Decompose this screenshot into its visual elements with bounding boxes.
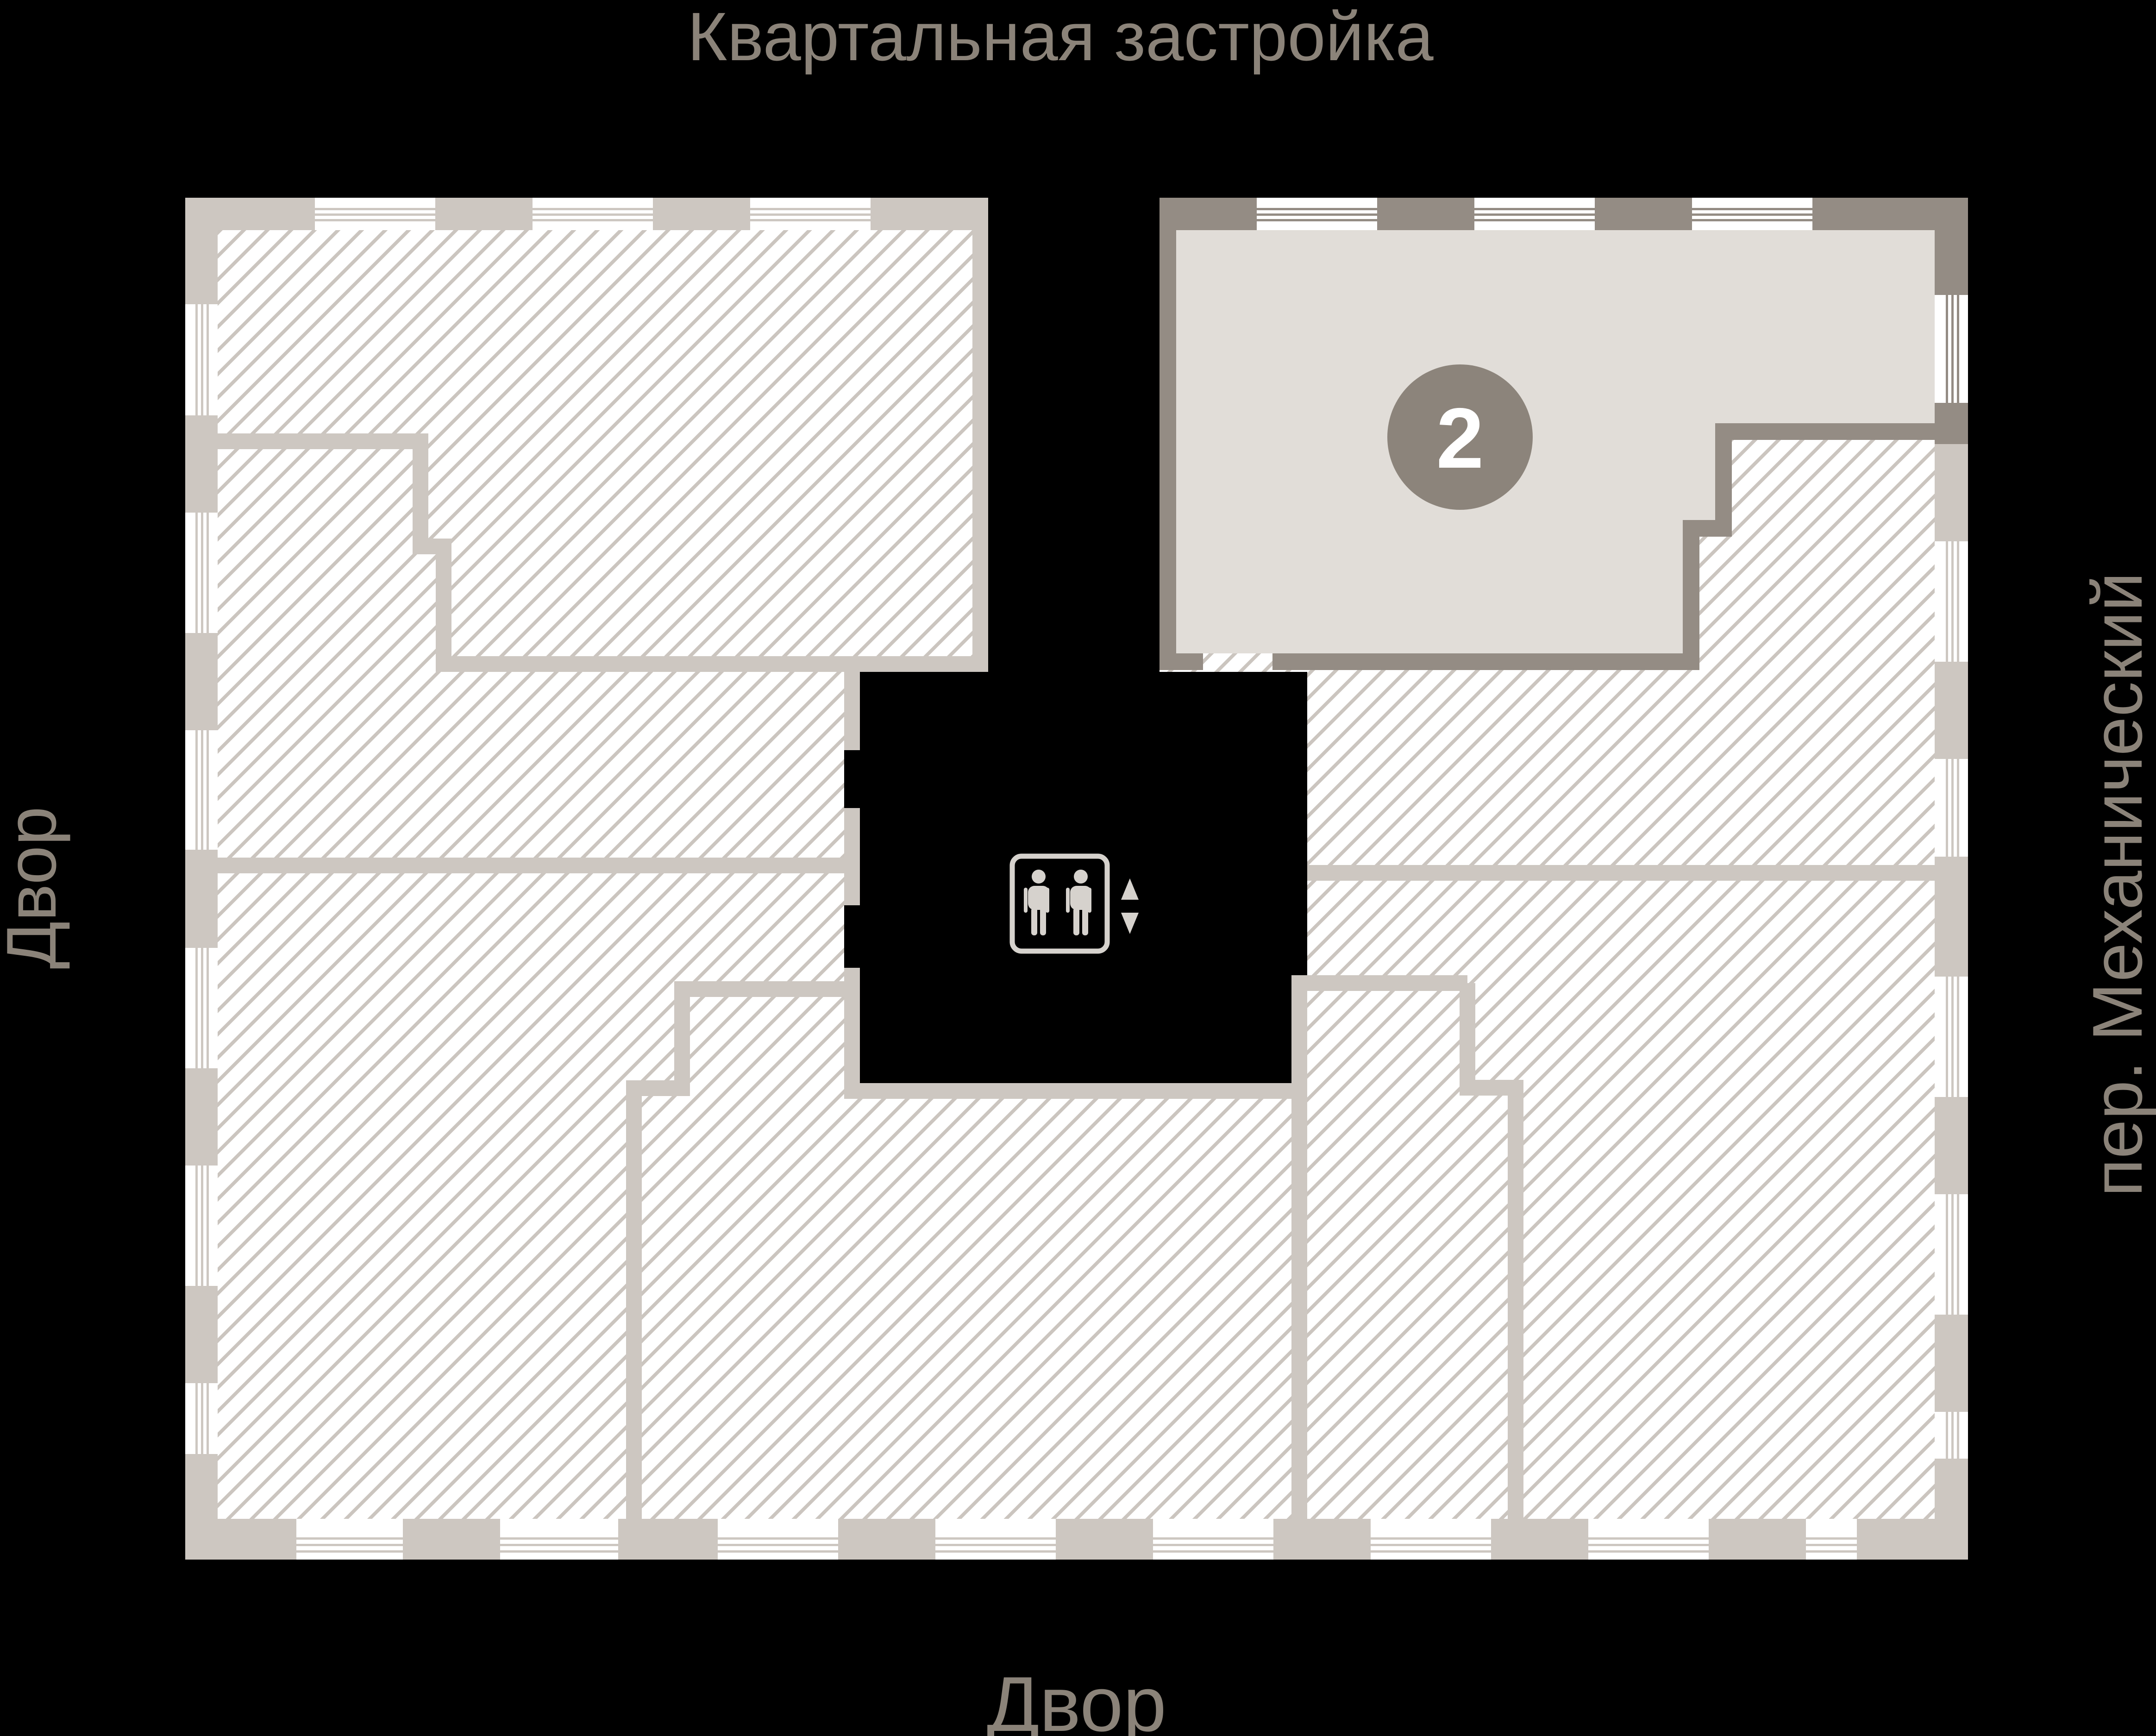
apartment-number: 2 [1436, 391, 1484, 486]
outer-wall-top-light [185, 198, 988, 230]
outer-wall-right-light [1935, 444, 1968, 1560]
core-block [844, 672, 1307, 1099]
label-right-street: пер. Механический [2078, 572, 2156, 1197]
label-left-street: Двор [0, 806, 71, 969]
label-bottom-street: Двор [987, 1661, 1166, 1736]
label-top-street: Квартальная застройка [687, 0, 1434, 75]
floorplan-canvas: Квартальная застройка Двор Двор пер. Мех… [0, 0, 2156, 1736]
outer-wall-bottom [185, 1519, 1968, 1560]
outer-wall-top-dark [1159, 198, 1968, 230]
floorplan-screen: Квартальная застройка Двор Двор пер. Мех… [0, 0, 2156, 1736]
corridor [988, 198, 1159, 680]
